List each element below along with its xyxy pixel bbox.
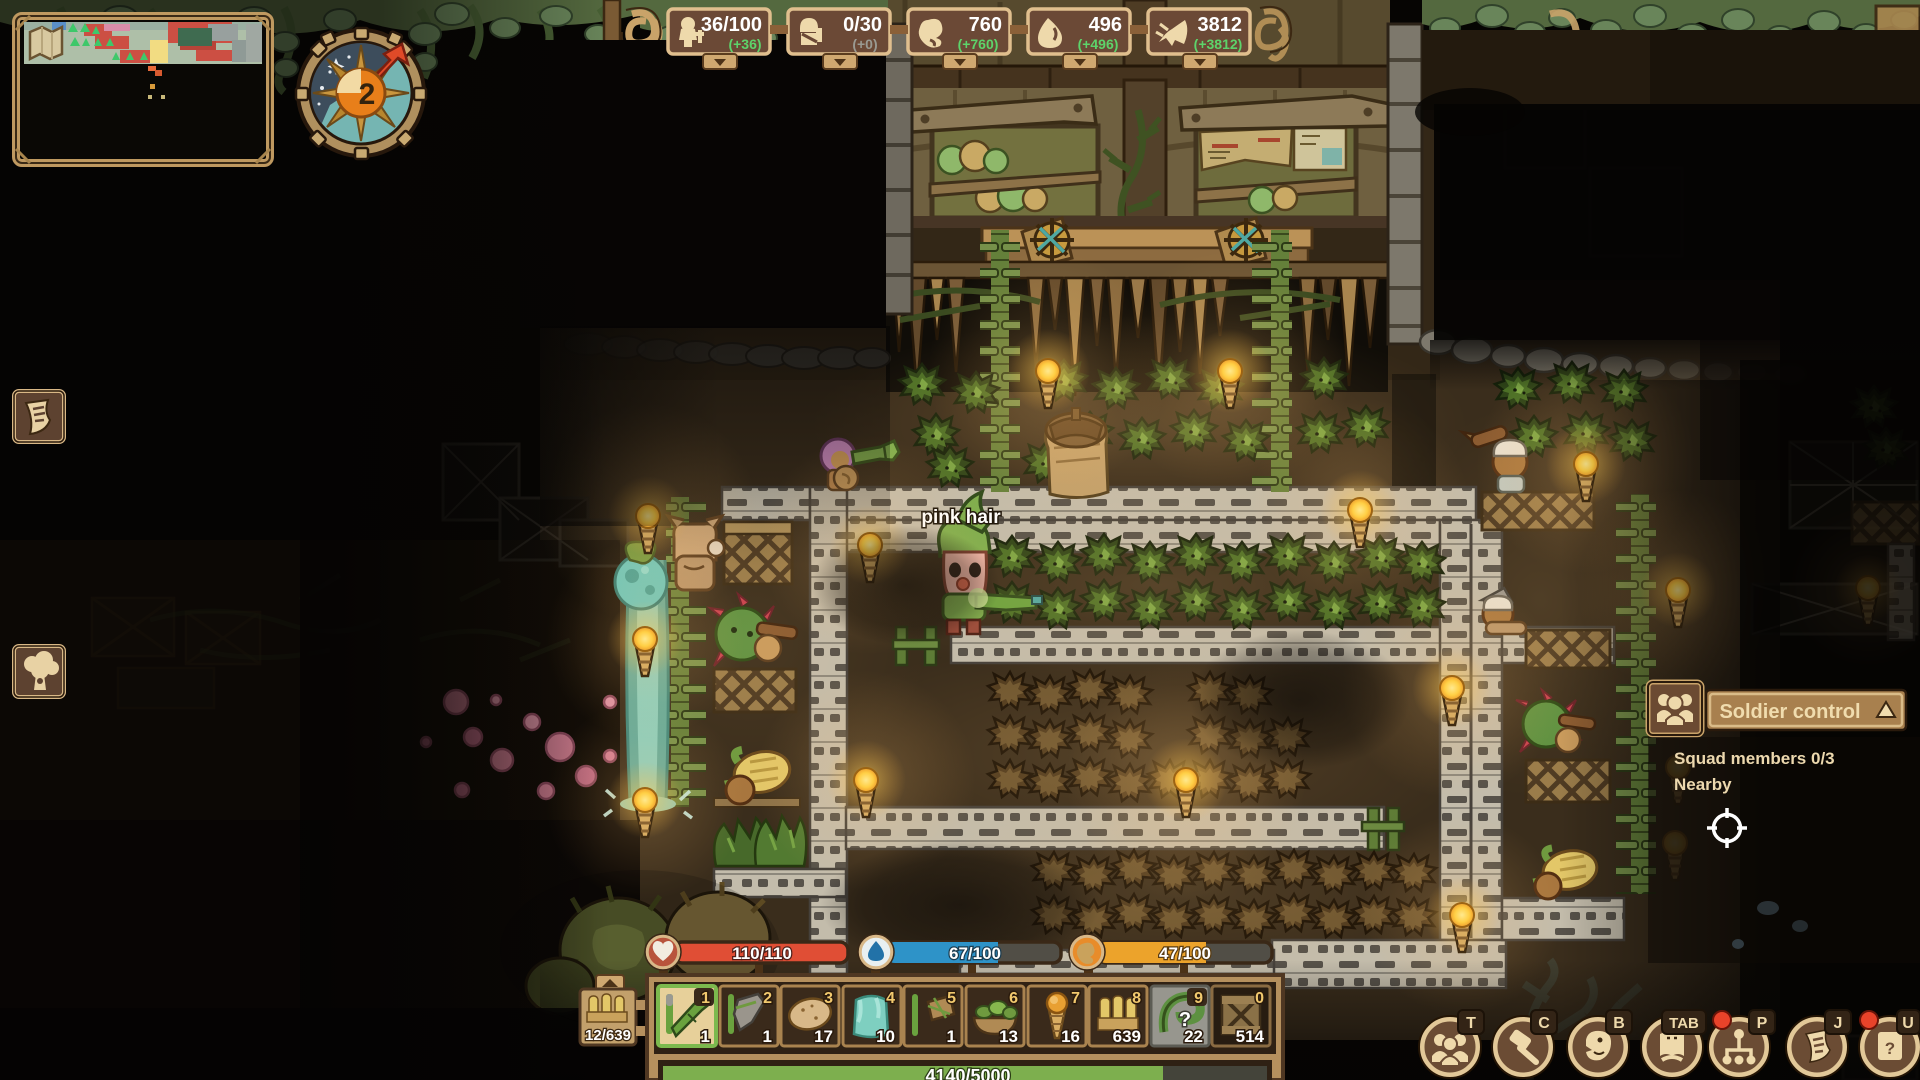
svg-text:0/30: 0/30 <box>843 14 882 36</box>
svg-text:(+760): (+760) <box>958 36 999 52</box>
svg-text:5: 5 <box>947 990 956 1007</box>
svg-text:4140/5000: 4140/5000 <box>925 1066 1010 1080</box>
svg-text:16: 16 <box>1061 1027 1080 1046</box>
svg-text:(+0): (+0) <box>852 36 877 52</box>
svg-text:P: P <box>1757 1015 1768 1032</box>
svg-text:496: 496 <box>1089 14 1122 36</box>
svg-text:J: J <box>1834 1015 1843 1032</box>
svg-text:36/100: 36/100 <box>701 14 762 36</box>
svg-text:(+496): (+496) <box>1078 36 1119 52</box>
svg-text:T: T <box>1466 1015 1476 1032</box>
svg-text:639: 639 <box>1113 1027 1141 1046</box>
svg-text:1: 1 <box>701 990 710 1007</box>
svg-text:514: 514 <box>1236 1027 1265 1046</box>
svg-text:3: 3 <box>824 990 833 1007</box>
svg-text:C: C <box>1538 1015 1550 1032</box>
svg-text:10: 10 <box>876 1027 895 1046</box>
svg-text:B: B <box>1613 1015 1625 1032</box>
svg-text:?: ? <box>1885 1039 1895 1058</box>
svg-text:9: 9 <box>1194 990 1203 1007</box>
svg-text:47/100: 47/100 <box>1159 944 1211 963</box>
svg-text:3812: 3812 <box>1198 14 1243 36</box>
svg-text:0: 0 <box>1255 990 1264 1007</box>
svg-text:1: 1 <box>947 1027 956 1046</box>
svg-text:2: 2 <box>763 990 772 1007</box>
svg-text:Soldier control: Soldier control <box>1719 701 1860 723</box>
svg-text:2: 2 <box>359 78 376 111</box>
svg-text:Squad members 0/3: Squad members 0/3 <box>1674 749 1835 768</box>
svg-text:17: 17 <box>814 1027 833 1046</box>
svg-text:1: 1 <box>763 1027 772 1046</box>
svg-text:760: 760 <box>969 14 1002 36</box>
svg-text:4: 4 <box>886 990 895 1007</box>
svg-text:110/110: 110/110 <box>732 944 792 963</box>
svg-text:TAB: TAB <box>1669 1015 1699 1032</box>
svg-text:U: U <box>1902 1015 1914 1032</box>
svg-text:7: 7 <box>1071 990 1080 1007</box>
svg-text:Nearby: Nearby <box>1674 775 1732 794</box>
svg-text:1: 1 <box>701 1027 710 1046</box>
svg-text:13: 13 <box>999 1027 1018 1046</box>
svg-text:8: 8 <box>1132 990 1141 1007</box>
svg-text:6: 6 <box>1009 990 1018 1007</box>
svg-text:(+36): (+36) <box>728 36 761 52</box>
svg-text:67/100: 67/100 <box>949 944 1001 963</box>
svg-text:12/639: 12/639 <box>585 1027 631 1044</box>
svg-text:22: 22 <box>1184 1027 1203 1046</box>
svg-text:(+3812): (+3812) <box>1194 36 1243 52</box>
